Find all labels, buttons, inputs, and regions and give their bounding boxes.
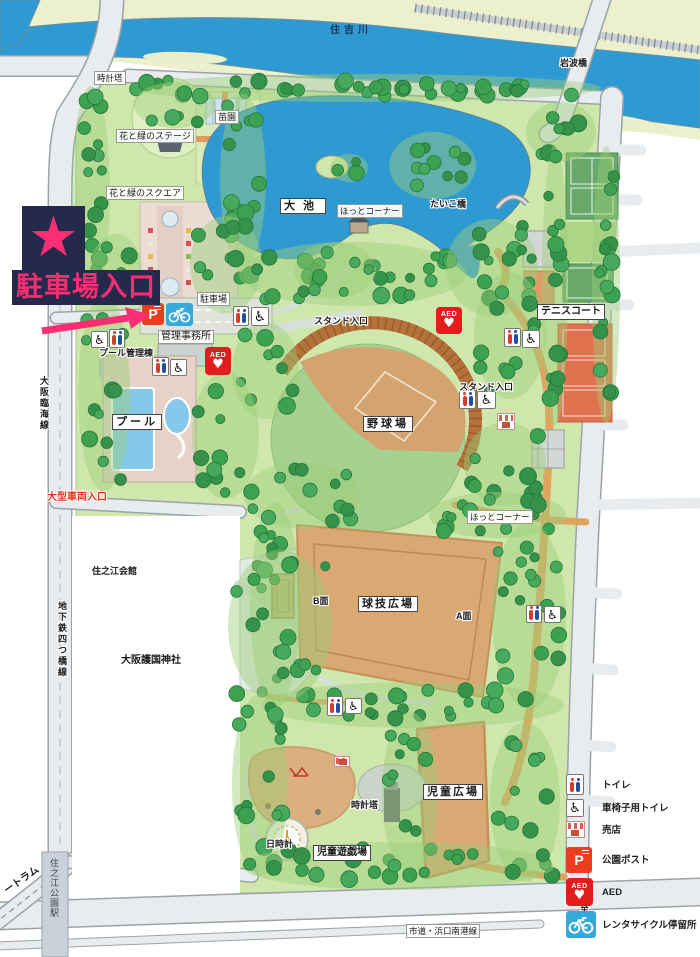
label-stand-entrance-east: スタンド入口 bbox=[459, 380, 513, 393]
label-stage: 花と緑のステージ bbox=[116, 129, 194, 143]
arrow-icon bbox=[38, 298, 158, 338]
male-figure bbox=[535, 610, 539, 620]
female-figure bbox=[236, 313, 240, 323]
label-children-plaza: 児童広場 bbox=[423, 784, 483, 800]
label-bridge: 岩波橋 bbox=[560, 56, 587, 69]
shop-icon bbox=[497, 413, 515, 430]
shop-icon bbox=[334, 756, 350, 767]
bicycle-glyph bbox=[568, 913, 594, 936]
label-flower-square: 花と緑のスクエア bbox=[106, 186, 184, 200]
wheelchair-toilet-icon: ♿ bbox=[544, 606, 561, 623]
legend-label-shop: 売店 bbox=[602, 826, 621, 836]
park-post-icon: P bbox=[566, 847, 592, 873]
label-hot-corner-north: ほっとコーナー bbox=[337, 204, 403, 218]
heart-icon: ♥ bbox=[212, 358, 224, 371]
male-figure bbox=[469, 396, 473, 406]
wheelchair-toilet-icon: ♿ bbox=[345, 698, 362, 714]
toilet-icon bbox=[327, 696, 343, 716]
legend-label-bike-rental: レンタサイクル停留所 bbox=[602, 921, 697, 931]
toilet-icon bbox=[566, 774, 584, 795]
label-sundial: 日時計 bbox=[266, 837, 293, 850]
label-pool-mgmt: プール管理棟 bbox=[99, 346, 153, 359]
bike-rental-icon bbox=[166, 303, 193, 326]
wheelchair-toilet-icon: ♿ bbox=[170, 359, 187, 376]
label-taiko-bridge: たいこ橋 bbox=[430, 197, 466, 210]
label-large-vehicle-entrance: 大型車両入口 bbox=[47, 488, 107, 503]
label-side-b: B面 bbox=[313, 594, 329, 607]
label-pool: プール bbox=[112, 414, 162, 430]
label-subway-yotsubashi: 地下鉄四つ橋線 bbox=[56, 601, 69, 678]
legend-item-park-post: P公園ポスト bbox=[0, 50, 26, 76]
wheelchair-toilet-icon: ♿ bbox=[566, 799, 584, 817]
label-osaka-rinkai-line: 大阪臨海線 bbox=[38, 376, 51, 431]
star-marker: ★ bbox=[22, 206, 85, 270]
female-figure bbox=[529, 610, 533, 620]
aed-icon: AED♥ bbox=[566, 878, 593, 906]
legend-label-wheelchair-toilet: 車椅子用トイレ bbox=[602, 804, 669, 814]
label-nursery: 苗園 bbox=[215, 110, 239, 124]
label-gokoku-shrine: 大阪護国神社 bbox=[121, 651, 181, 666]
wheelchair-toilet-icon: ♿ bbox=[522, 330, 540, 348]
label-river: 住吉川 bbox=[330, 21, 372, 36]
wheelchair-toilet-icon: ♿ bbox=[251, 307, 269, 326]
label-stand-entrance-west: スタンド入口 bbox=[314, 314, 368, 327]
female-figure bbox=[330, 703, 334, 713]
legend-label-aed: AED bbox=[602, 888, 622, 898]
toilet-icon bbox=[152, 357, 169, 376]
label-children-playground: 児童遊戯場 bbox=[313, 845, 371, 861]
toilet-icon bbox=[504, 328, 521, 347]
female-figure bbox=[156, 363, 160, 373]
label-baseball-field: 野球場 bbox=[363, 416, 413, 432]
label-hot-corner-south: ほっとコーナー bbox=[467, 510, 533, 524]
label-clock-tower-north: 時計塔 bbox=[94, 71, 126, 85]
mail-lines bbox=[582, 850, 589, 856]
male-figure bbox=[336, 703, 340, 713]
label-ball-game-plaza: 球技広場 bbox=[358, 596, 418, 612]
legend-label-toilet: トイレ bbox=[602, 781, 631, 791]
label-suminoe-hall: 住之江会館 bbox=[92, 564, 137, 577]
label-parking-lot: 駐車場 bbox=[197, 292, 230, 306]
map-illustration bbox=[0, 0, 700, 957]
male-figure bbox=[242, 313, 246, 323]
female-figure bbox=[463, 396, 467, 406]
label-side-a: A面 bbox=[456, 609, 472, 622]
legend-label-park-post: 公園ポスト bbox=[602, 856, 650, 866]
label-tennis-court: テニスコート bbox=[537, 304, 605, 320]
wheelchair-toilet-icon: ♿ bbox=[477, 391, 496, 409]
male-figure bbox=[162, 363, 166, 373]
label-big-pond: 大池 bbox=[280, 198, 326, 214]
male-figure bbox=[576, 782, 580, 792]
female-figure bbox=[508, 334, 512, 344]
bicycle-glyph bbox=[168, 305, 191, 324]
label-admin-office: 管理事務所 bbox=[158, 330, 214, 344]
aed-icon: AED♥ bbox=[436, 307, 462, 334]
shop-icon bbox=[566, 821, 585, 838]
heart-icon: ♥ bbox=[443, 317, 455, 330]
heart-icon: ♥ bbox=[574, 889, 586, 902]
bike-rental-icon bbox=[566, 911, 596, 938]
toilet-icon bbox=[233, 306, 249, 326]
male-figure bbox=[514, 334, 518, 344]
aed-icon: AED♥ bbox=[205, 347, 231, 375]
toilet-icon bbox=[526, 605, 542, 623]
star-icon: ★ bbox=[28, 208, 78, 268]
label-clock-tower-south: 時計塔 bbox=[351, 798, 378, 811]
park-map: ★ 駐車場入口 住吉川 岩波橋 時計塔 花と緑のステージ 苗園 花と緑のスクエア… bbox=[0, 0, 700, 957]
label-suminoekoen-station: 住之江公園駅 bbox=[48, 858, 61, 918]
female-figure bbox=[570, 782, 574, 792]
label-city-road: 市道・浜口南港線 bbox=[406, 924, 480, 938]
